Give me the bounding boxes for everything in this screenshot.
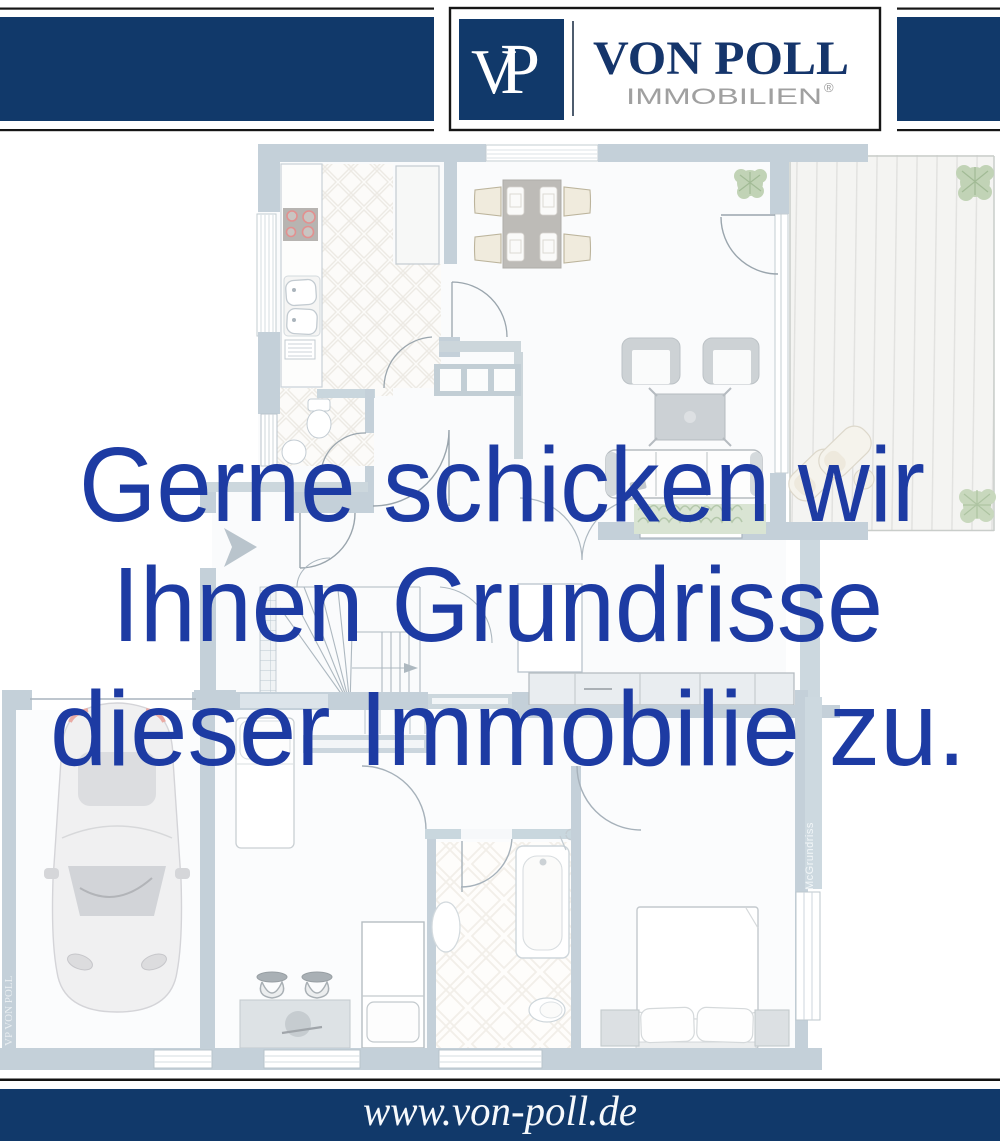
svg-text:Ihnen Grundrisse: Ihnen Grundrisse [112, 546, 883, 664]
svg-text:P: P [500, 29, 540, 109]
svg-text:Gerne schicken wir: Gerne schicken wir [79, 426, 925, 544]
svg-text:McGrundriss: McGrundriss [804, 822, 816, 890]
svg-text:IMMOBILIEN: IMMOBILIEN [626, 84, 822, 109]
svg-text:VP VON POLL: VP VON POLL [3, 975, 15, 1046]
svg-text:www.von-poll.de: www.von-poll.de [363, 1089, 637, 1135]
svg-text:VON POLL: VON POLL [593, 32, 849, 85]
svg-text:dieser Immobilie zu.: dieser Immobilie zu. [50, 670, 966, 788]
svg-text:®: ® [824, 80, 834, 95]
